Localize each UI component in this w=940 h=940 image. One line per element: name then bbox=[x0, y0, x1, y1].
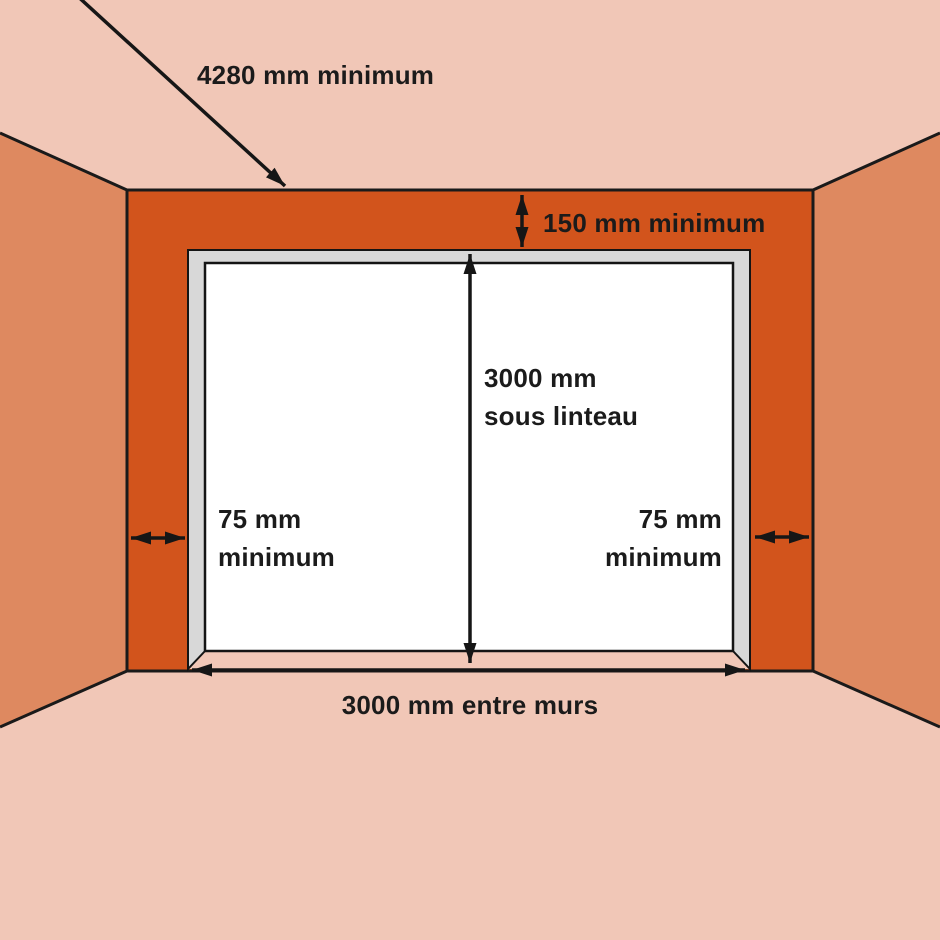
right-clearance-label: 75 mm minimum bbox=[540, 500, 722, 576]
left-clearance-label: 75 mm minimum bbox=[218, 500, 335, 576]
opening-height-label-line1: 3000 mm bbox=[484, 359, 638, 397]
opening-width-label: 3000 mm entre murs bbox=[340, 691, 600, 719]
ceiling-surface bbox=[0, 0, 940, 190]
right-wall-surface bbox=[813, 133, 940, 727]
garage-door-dimensions-diagram: 4280 mm minimum 150 mm minimum 3000 mm s… bbox=[0, 0, 940, 940]
ceiling-depth-label: 4280 mm minimum bbox=[197, 61, 434, 89]
right-clearance-label-line1: 75 mm bbox=[540, 500, 722, 538]
opening-height-label: 3000 mm sous linteau bbox=[484, 359, 638, 435]
room-perspective-scene bbox=[0, 0, 940, 940]
right-clearance-label-line2: minimum bbox=[540, 538, 722, 576]
opening-height-label-line2: sous linteau bbox=[484, 397, 638, 435]
left-clearance-label-line1: 75 mm bbox=[218, 500, 335, 538]
left-clearance-label-line2: minimum bbox=[218, 538, 335, 576]
lintel-clearance-label: 150 mm minimum bbox=[543, 209, 765, 237]
left-wall-surface bbox=[0, 133, 127, 727]
